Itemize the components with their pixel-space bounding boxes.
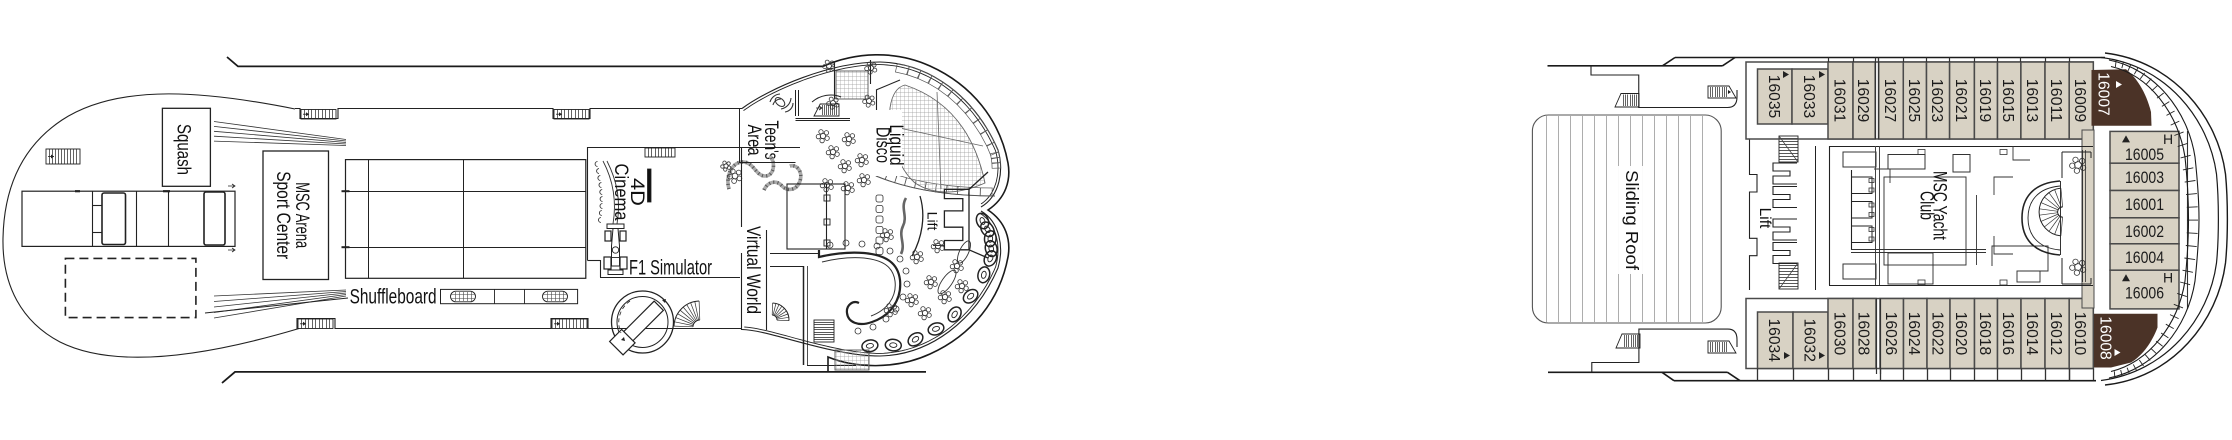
svg-text:16024: 16024: [1905, 312, 1922, 356]
svg-text:Lift: Lift: [925, 212, 941, 231]
svg-text:16002: 16002: [2125, 222, 2164, 241]
svg-text:F1 Simulator: F1 Simulator: [629, 257, 712, 280]
svg-text:16007: 16007: [2095, 72, 2112, 116]
svg-text:16014: 16014: [2023, 312, 2040, 356]
svg-text:16011: 16011: [2047, 79, 2064, 123]
svg-text:16021: 16021: [1952, 79, 1969, 123]
svg-text:Virtual World: Virtual World: [742, 226, 763, 314]
svg-text:Disco: Disco: [872, 127, 893, 163]
svg-text:H: H: [2163, 131, 2173, 147]
svg-text:16020: 16020: [1952, 312, 1969, 356]
svg-text:16023: 16023: [1928, 79, 1945, 123]
svg-text:16022: 16022: [1929, 312, 1946, 356]
svg-text:16031: 16031: [1831, 79, 1848, 123]
svg-text:H: H: [2163, 270, 2173, 286]
svg-text:Sport Center: Sport Center: [272, 171, 293, 260]
svg-text:Squash: Squash: [173, 124, 195, 175]
svg-text:Club: Club: [1916, 191, 1937, 220]
svg-text:16013: 16013: [2023, 79, 2040, 123]
svg-text:16003: 16003: [2125, 168, 2164, 187]
svg-text:16009: 16009: [2071, 79, 2088, 123]
svg-text:16026: 16026: [1882, 312, 1899, 356]
svg-text:16010: 16010: [2071, 312, 2088, 356]
svg-text:16033: 16033: [1800, 75, 1817, 119]
svg-text:16029: 16029: [1854, 79, 1871, 123]
svg-text:16006: 16006: [2125, 284, 2164, 303]
svg-text:16016: 16016: [1999, 312, 2016, 356]
svg-text:16012: 16012: [2047, 312, 2064, 356]
svg-text:16025: 16025: [1905, 79, 1922, 123]
svg-text:Shuffleboard: Shuffleboard: [350, 286, 437, 309]
svg-text:Cinema: Cinema: [610, 164, 631, 221]
svg-text:16004: 16004: [2125, 248, 2164, 267]
svg-text:16015: 16015: [1999, 79, 2016, 123]
svg-text:16018: 16018: [1976, 312, 1993, 356]
svg-text:16032: 16032: [1801, 318, 1818, 362]
svg-text:16001: 16001: [2125, 195, 2164, 214]
svg-text:MSC Arena: MSC Arena: [291, 182, 312, 248]
svg-text:16005: 16005: [2125, 145, 2164, 164]
svg-text:Area: Area: [743, 125, 764, 156]
svg-text:16008: 16008: [2097, 316, 2114, 360]
svg-text:16030: 16030: [1831, 312, 1848, 356]
svg-text:Sliding Roof: Sliding Roof: [1622, 170, 1642, 270]
svg-text:16028: 16028: [1855, 312, 1872, 356]
svg-text:16035: 16035: [1765, 75, 1782, 119]
svg-text:16027: 16027: [1881, 79, 1898, 123]
svg-text:16034: 16034: [1765, 318, 1782, 362]
svg-text:Lift: Lift: [1756, 208, 1773, 229]
svg-text:16019: 16019: [1976, 79, 1993, 123]
